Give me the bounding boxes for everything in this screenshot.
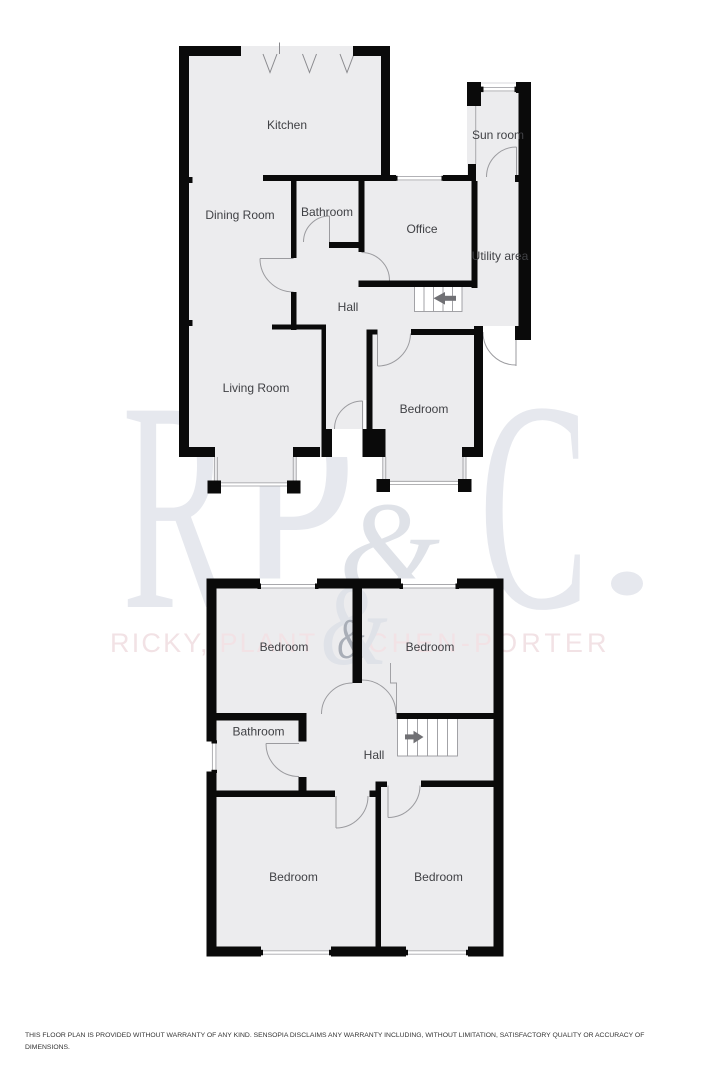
svg-text:Bathroom: Bathroom — [232, 725, 284, 739]
svg-text:Bedroom: Bedroom — [414, 870, 463, 884]
svg-text:Sun room: Sun room — [472, 128, 524, 142]
svg-text:Kitchen: Kitchen — [267, 118, 307, 132]
svg-text:THIS FLOOR PLAN IS PROVIDED WI: THIS FLOOR PLAN IS PROVIDED WITHOUT WARR… — [25, 1032, 644, 1039]
svg-text:Bedroom: Bedroom — [406, 640, 455, 654]
svg-text:Dining Room: Dining Room — [205, 208, 274, 222]
svg-text:DIMENSIONS.: DIMENSIONS. — [25, 1044, 70, 1051]
svg-text:CHEN-PORTER: CHEN-PORTER — [368, 628, 611, 658]
svg-text:Office: Office — [406, 222, 437, 236]
svg-text:Bathroom: Bathroom — [301, 205, 353, 219]
svg-text:Hall: Hall — [338, 300, 359, 314]
svg-text:Bedroom: Bedroom — [400, 402, 449, 416]
svg-text:Bedroom: Bedroom — [260, 640, 309, 654]
svg-text:Hall: Hall — [364, 748, 385, 762]
svg-text:Living Room: Living Room — [223, 381, 290, 395]
svg-text:Utility area: Utility area — [472, 249, 529, 263]
svg-text:Bedroom: Bedroom — [269, 870, 318, 884]
